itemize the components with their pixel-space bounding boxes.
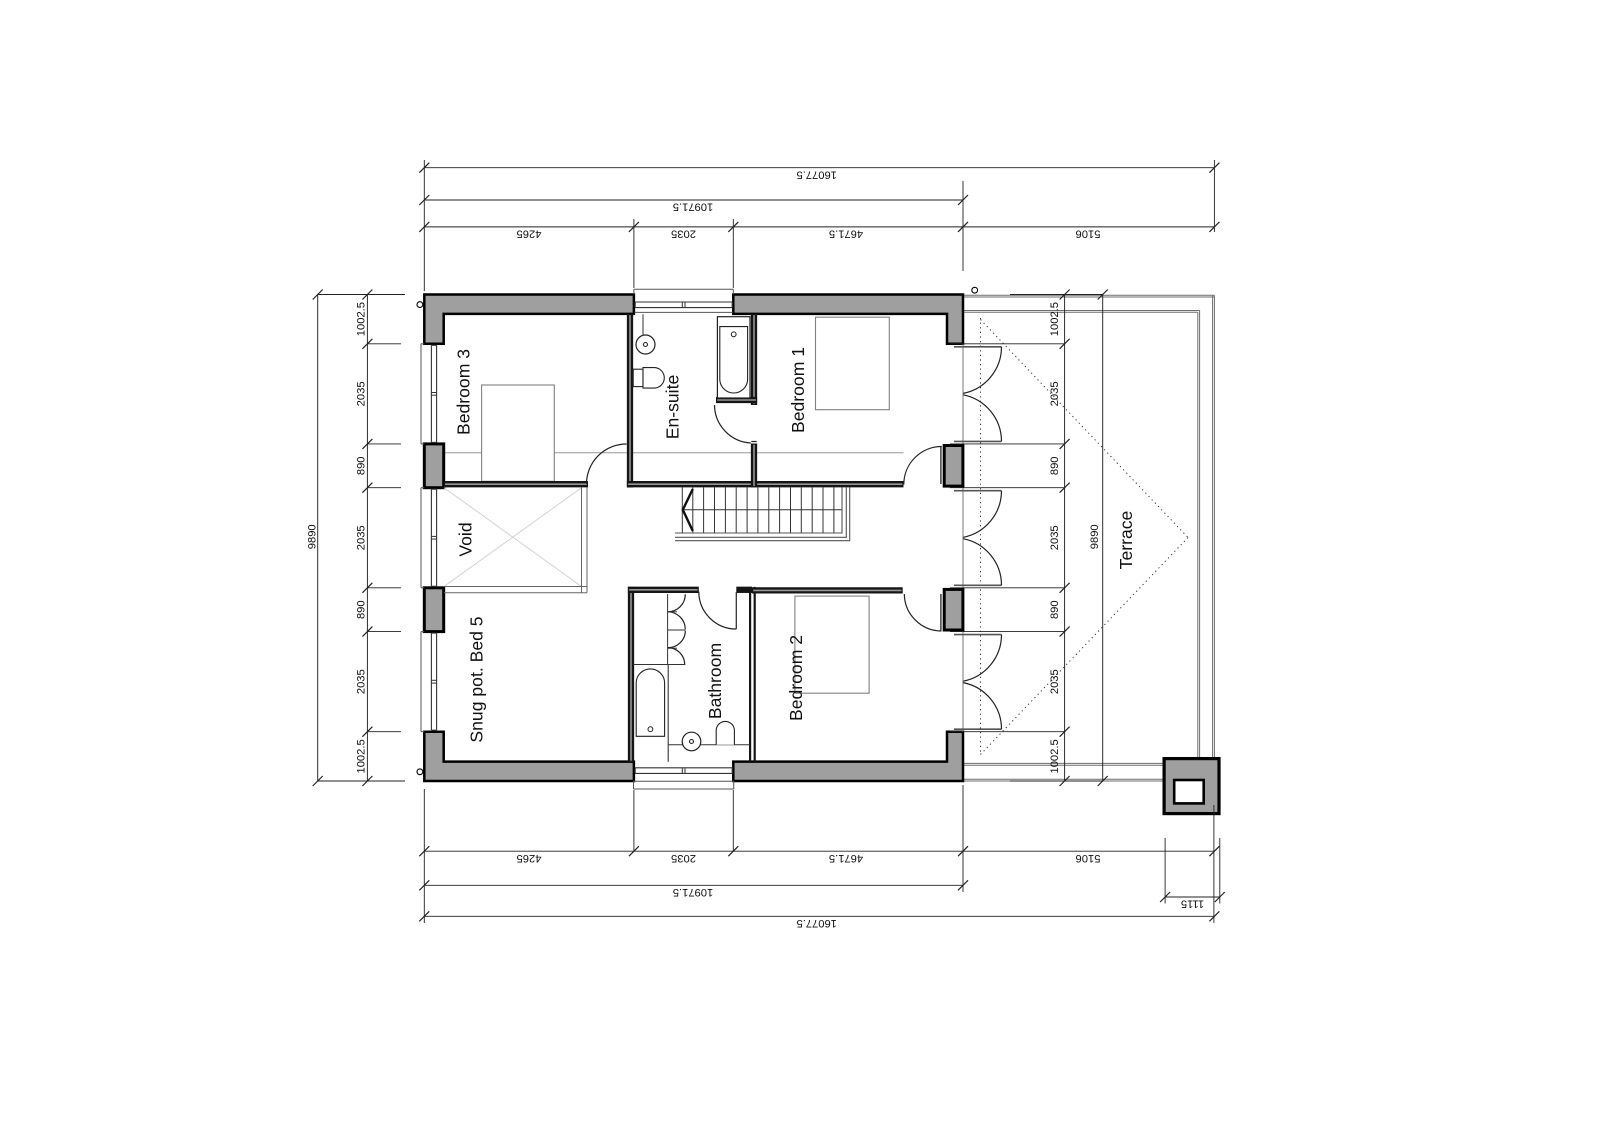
svg-text:10971.5: 10971.5 [673, 886, 713, 898]
svg-text:Bedroom 1: Bedroom 1 [788, 347, 808, 433]
svg-text:9890: 9890 [1089, 524, 1101, 549]
svg-text:10971.5: 10971.5 [673, 201, 713, 213]
svg-text:Bedroom 2: Bedroom 2 [786, 635, 806, 721]
svg-text:2035: 2035 [355, 669, 367, 694]
svg-text:4265: 4265 [517, 228, 542, 240]
svg-text:890: 890 [1049, 600, 1061, 619]
svg-text:4671.5: 4671.5 [829, 228, 863, 240]
svg-text:890: 890 [355, 456, 367, 475]
svg-text:Void: Void [456, 522, 476, 556]
svg-text:16077.5: 16077.5 [796, 168, 836, 180]
svg-text:2035: 2035 [1049, 669, 1061, 694]
svg-text:5106: 5106 [1076, 852, 1101, 864]
svg-text:1002.5: 1002.5 [1049, 302, 1061, 336]
svg-text:5106: 5106 [1076, 228, 1101, 240]
svg-text:2035: 2035 [1049, 525, 1061, 550]
svg-text:Snug pot. Bed 5: Snug pot. Bed 5 [467, 616, 487, 742]
svg-text:1002.5: 1002.5 [355, 739, 367, 773]
svg-text:1115: 1115 [1181, 898, 1204, 910]
svg-text:4265: 4265 [517, 852, 542, 864]
svg-text:2035: 2035 [355, 525, 367, 550]
svg-text:4671.5: 4671.5 [829, 852, 863, 864]
svg-text:16077.5: 16077.5 [796, 917, 836, 929]
svg-text:En-suite: En-suite [663, 375, 683, 440]
svg-text:1002.5: 1002.5 [1049, 739, 1061, 773]
svg-text:9890: 9890 [306, 524, 318, 549]
svg-text:890: 890 [355, 600, 367, 619]
svg-text:1002.5: 1002.5 [355, 302, 367, 336]
svg-text:Terrace: Terrace [1116, 511, 1136, 570]
svg-text:2035: 2035 [355, 381, 367, 406]
svg-text:Bedroom 3: Bedroom 3 [454, 349, 474, 435]
svg-text:890: 890 [1049, 456, 1061, 475]
svg-text:Bathroom: Bathroom [705, 643, 725, 719]
svg-text:2035: 2035 [671, 228, 696, 240]
svg-text:2035: 2035 [1049, 381, 1061, 406]
svg-text:2035: 2035 [671, 852, 696, 864]
